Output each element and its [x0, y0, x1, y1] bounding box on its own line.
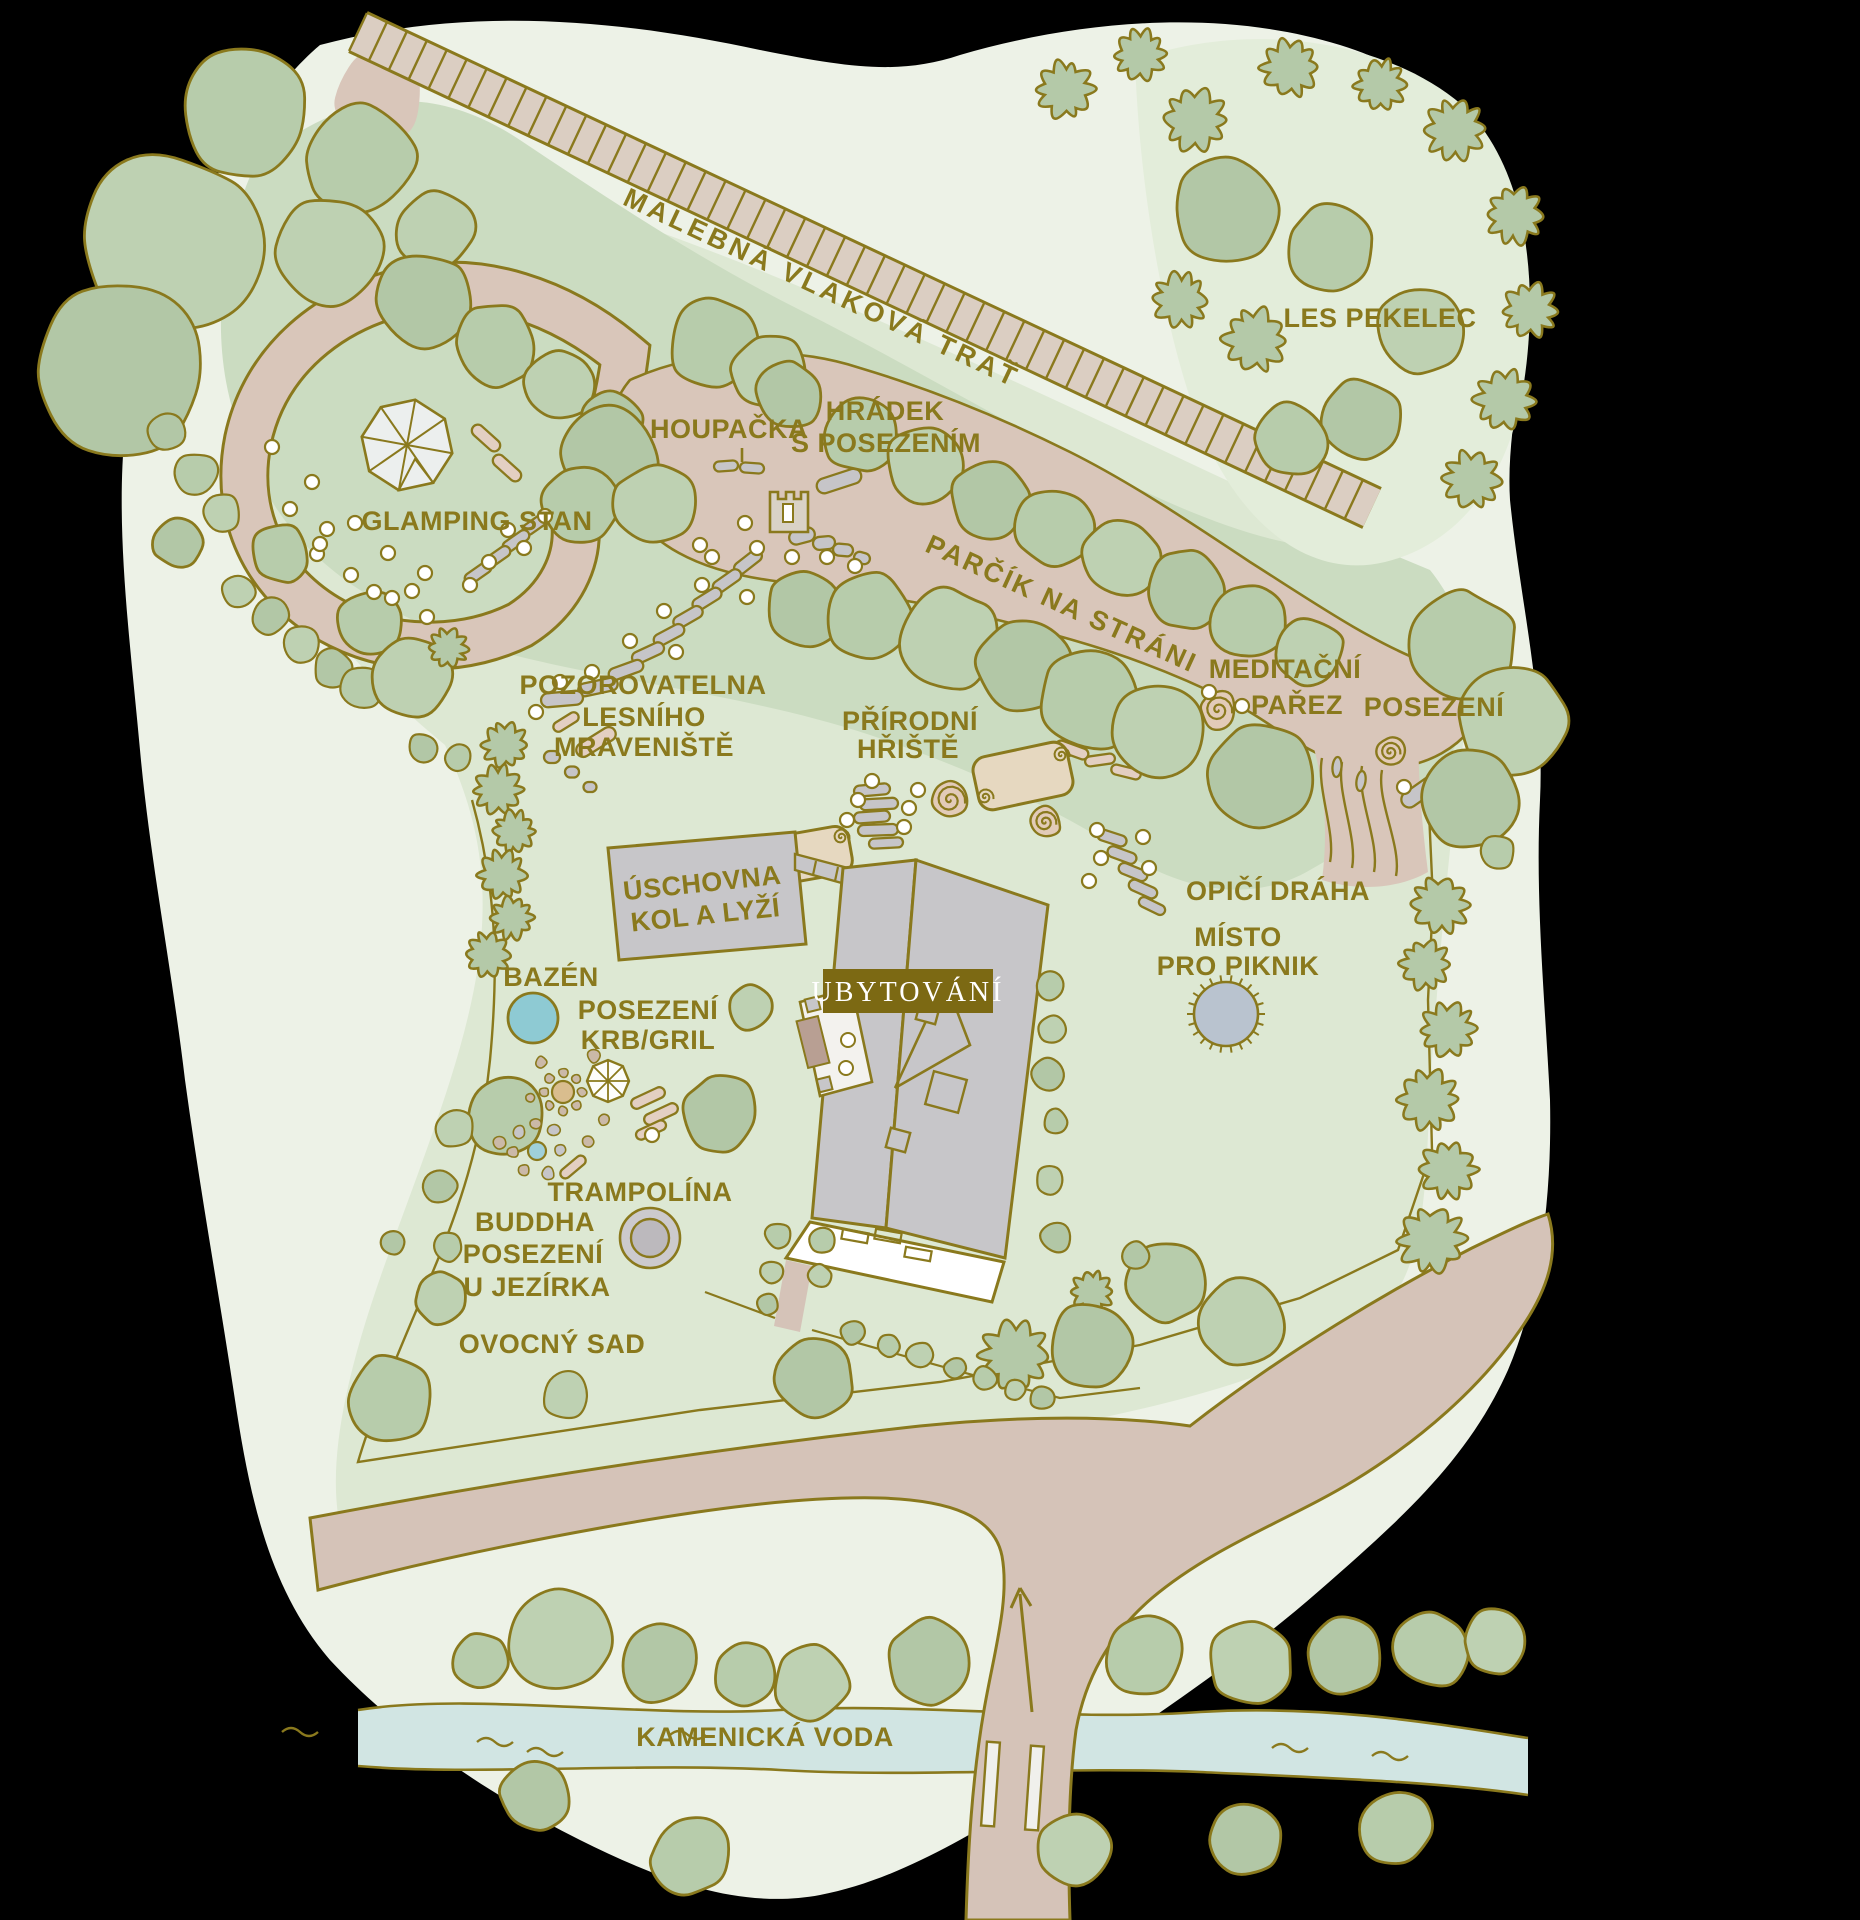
bush-icon	[381, 1231, 405, 1254]
bush-icon	[760, 1262, 783, 1283]
firepit-icon	[599, 1114, 610, 1125]
label-anthill: POZOROVATELNA	[520, 670, 767, 700]
bush-icon	[222, 576, 256, 607]
bush-icon	[809, 1228, 834, 1253]
bush-icon	[1031, 1386, 1055, 1408]
stone	[1332, 757, 1343, 778]
bush-icon	[1481, 836, 1514, 868]
light-dot	[344, 568, 358, 582]
label-meditation: PAŘEZ	[1251, 689, 1343, 720]
tree-icon	[1359, 1792, 1432, 1863]
label-picnic: MÍSTO	[1194, 921, 1282, 952]
light-dot	[1082, 874, 1096, 888]
tree-icon	[1038, 1814, 1112, 1886]
light-dot	[738, 516, 752, 530]
stone	[833, 543, 854, 557]
tree-icon	[1210, 586, 1285, 656]
label-swing: HOUPAČKA	[650, 413, 808, 444]
firepit-icon	[546, 1101, 554, 1110]
light-dot	[529, 705, 543, 719]
label-buddha: BUDDHA	[475, 1207, 595, 1237]
tree-icon	[416, 1272, 466, 1325]
light-dot	[381, 546, 395, 560]
light-dot	[851, 793, 865, 807]
stone	[565, 767, 579, 778]
map-stage: MALEBNÁ VLAKOVÁ TRAŤ LES PEKELEC GLAMPIN…	[0, 0, 1860, 1920]
light-dot	[840, 813, 854, 827]
light-dot	[693, 538, 707, 552]
stone	[584, 782, 597, 792]
light-dot	[1094, 851, 1108, 865]
pond-stone	[555, 1145, 566, 1156]
label-anthill: MRAVENIŠTĚ	[554, 731, 734, 762]
tree-icon	[1211, 1622, 1291, 1704]
tree-icon	[185, 49, 304, 176]
bush-icon	[544, 1371, 587, 1418]
chimney	[886, 1128, 910, 1152]
label-castle: HRÁDEK	[826, 395, 945, 426]
light-dot	[1397, 780, 1411, 794]
firepit-icon	[545, 1074, 555, 1083]
tree-icon	[1393, 1612, 1469, 1686]
tree-icon	[1465, 1609, 1525, 1674]
light-dot	[313, 537, 327, 551]
pond-stone	[518, 1165, 529, 1176]
light-dot	[348, 516, 362, 530]
stone	[858, 824, 898, 836]
tree-icon	[253, 525, 307, 583]
light-dot	[463, 578, 477, 592]
light-dot	[740, 590, 754, 604]
light-dot	[405, 584, 419, 598]
bush-icon	[1005, 1380, 1025, 1400]
light-dot	[1142, 861, 1156, 875]
label-fireplace: KRB/GRIL	[581, 1025, 716, 1055]
light-dot	[623, 634, 637, 648]
light-dot	[420, 610, 434, 624]
firepit-icon	[539, 1088, 548, 1096]
label-anthill: LESNÍHO	[582, 701, 706, 732]
firepit-icon	[552, 1081, 574, 1103]
label-accommodation: UBYTOVÁNÍ	[812, 977, 1005, 1008]
pond-stone	[493, 1136, 506, 1149]
label-seating-east: POSEZENÍ	[1364, 691, 1506, 722]
tree-icon	[499, 1761, 569, 1830]
light-dot	[517, 541, 531, 555]
bush-icon	[410, 734, 438, 762]
label-fireplace: POSEZENÍ	[578, 994, 720, 1025]
tree-icon	[1052, 1305, 1133, 1387]
annex-window	[839, 1061, 853, 1075]
swing-icon	[740, 462, 765, 474]
light-dot	[482, 555, 496, 569]
trampoline-icon	[631, 1219, 669, 1257]
light-dot	[305, 475, 319, 489]
bush-icon	[906, 1343, 933, 1367]
light-dot	[902, 801, 916, 815]
stone	[869, 837, 903, 849]
light-dot	[848, 559, 862, 573]
map-canvas: MALEBNÁ VLAKOVÁ TRAŤ LES PEKELEC GLAMPIN…	[0, 0, 1860, 1920]
bush-icon	[1037, 971, 1064, 1000]
tree-icon	[1106, 1616, 1182, 1694]
light-dot	[820, 550, 834, 564]
light-dot	[418, 566, 432, 580]
pond-icon	[528, 1142, 546, 1160]
label-monkey-course: OPIČÍ DRÁHA	[1186, 875, 1370, 906]
picnic-circle-icon	[1220, 1046, 1221, 1053]
light-dot	[1090, 823, 1104, 837]
bush-icon	[1031, 1058, 1064, 1091]
bush-icon	[1037, 1166, 1062, 1195]
bush-icon	[434, 1233, 461, 1262]
label-stream: KAMENICKÁ VODA	[636, 1721, 894, 1752]
light-dot	[897, 820, 911, 834]
tree-icon	[509, 1589, 613, 1689]
tree-icon	[453, 1634, 509, 1688]
bush-icon	[445, 744, 470, 771]
label-orchard: OVOCNÝ SAD	[459, 1328, 646, 1359]
tree-icon	[1210, 1804, 1281, 1874]
label-picnic: PRO PIKNIK	[1157, 951, 1320, 981]
light-dot	[750, 541, 764, 555]
label-forest: LES PEKELEC	[1283, 303, 1476, 333]
label-trampoline: TRAMPOLÍNA	[548, 1176, 733, 1207]
light-dot	[1235, 699, 1249, 713]
tree-icon	[1112, 686, 1203, 778]
castle-icon	[783, 504, 793, 522]
picnic-circle-icon	[1231, 1046, 1232, 1053]
firepit-icon	[582, 1136, 593, 1147]
firepit-icon	[559, 1106, 568, 1116]
pond-stone	[530, 1119, 541, 1129]
light-dot	[785, 550, 799, 564]
light-dot	[320, 522, 334, 536]
label-castle: S POSEZENÍM	[791, 427, 981, 458]
label-buddha: POSEZENÍ	[463, 1238, 605, 1269]
tree-icon	[1422, 750, 1520, 847]
light-dot	[669, 645, 683, 659]
label-pool: BAZÉN	[503, 961, 599, 992]
wave-icon	[282, 1728, 318, 1736]
pond-stone	[513, 1126, 524, 1139]
light-dot	[367, 585, 381, 599]
picnic-circle-icon	[1194, 982, 1258, 1046]
bush-icon	[944, 1358, 966, 1378]
bush-icon	[423, 1170, 458, 1202]
bush-icon	[1038, 1015, 1066, 1042]
bush-icon	[148, 414, 186, 450]
firepit-icon	[572, 1101, 581, 1110]
swing-icon	[714, 460, 739, 472]
label-playground: HŘIŠTĚ	[857, 733, 959, 764]
pond-stone	[547, 1125, 560, 1136]
light-dot	[657, 604, 671, 618]
light-dot	[645, 1128, 659, 1142]
bush-icon	[757, 1294, 778, 1315]
label-meditation: MEDITAČNÍ	[1209, 653, 1362, 684]
pool-icon	[508, 993, 558, 1043]
bush-icon	[284, 626, 319, 662]
label-playground: PŘÍRODNÍ	[842, 705, 979, 736]
light-dot	[283, 502, 297, 516]
firepit-icon	[559, 1069, 568, 1078]
firepit-icon	[526, 1094, 535, 1102]
bush-icon	[878, 1335, 900, 1357]
annex-window	[841, 1033, 855, 1047]
label-buddha: U JEZÍRKA	[463, 1271, 610, 1302]
bush-icon	[436, 1110, 473, 1146]
light-dot	[695, 578, 709, 592]
label-glamping: GLAMPING STAN	[362, 506, 593, 536]
tree-icon	[715, 1643, 774, 1706]
light-dot	[1136, 830, 1150, 844]
light-dot	[911, 783, 925, 797]
annex-window	[817, 1076, 833, 1092]
light-dot	[265, 440, 279, 454]
light-dot	[385, 591, 399, 605]
pond-stone	[507, 1147, 518, 1157]
light-dot	[865, 774, 879, 788]
firepit-icon	[572, 1075, 581, 1084]
light-dot	[1202, 685, 1216, 699]
bush-icon	[1122, 1241, 1149, 1268]
firepit-icon	[577, 1088, 587, 1097]
tree-icon	[1308, 1617, 1380, 1694]
light-dot	[705, 550, 719, 564]
stone	[854, 810, 891, 823]
